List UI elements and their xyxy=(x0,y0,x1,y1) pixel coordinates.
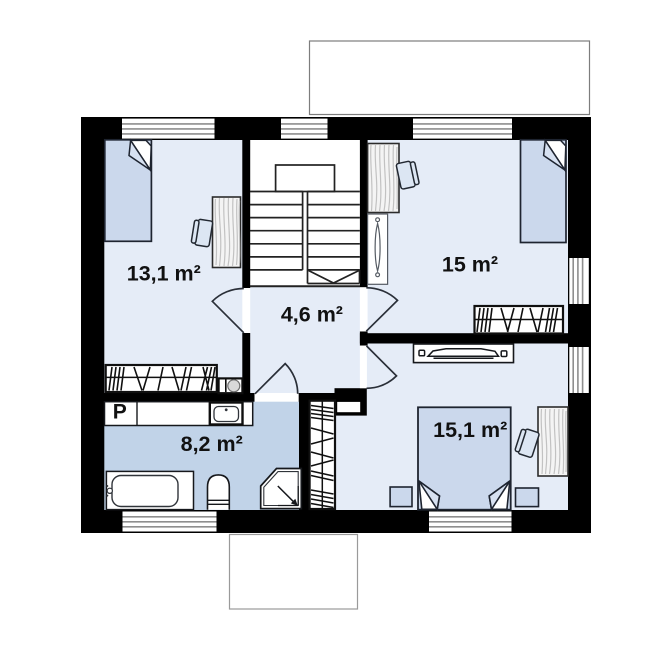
svg-text:4,6 m²: 4,6 m² xyxy=(281,302,343,326)
svg-text:P: P xyxy=(113,401,127,424)
svg-text:15,1 m²: 15,1 m² xyxy=(433,418,507,442)
svg-text:13,1 m²: 13,1 m² xyxy=(127,262,201,286)
svg-text:8,2 m²: 8,2 m² xyxy=(181,432,243,456)
svg-text:15 m²: 15 m² xyxy=(442,253,498,277)
